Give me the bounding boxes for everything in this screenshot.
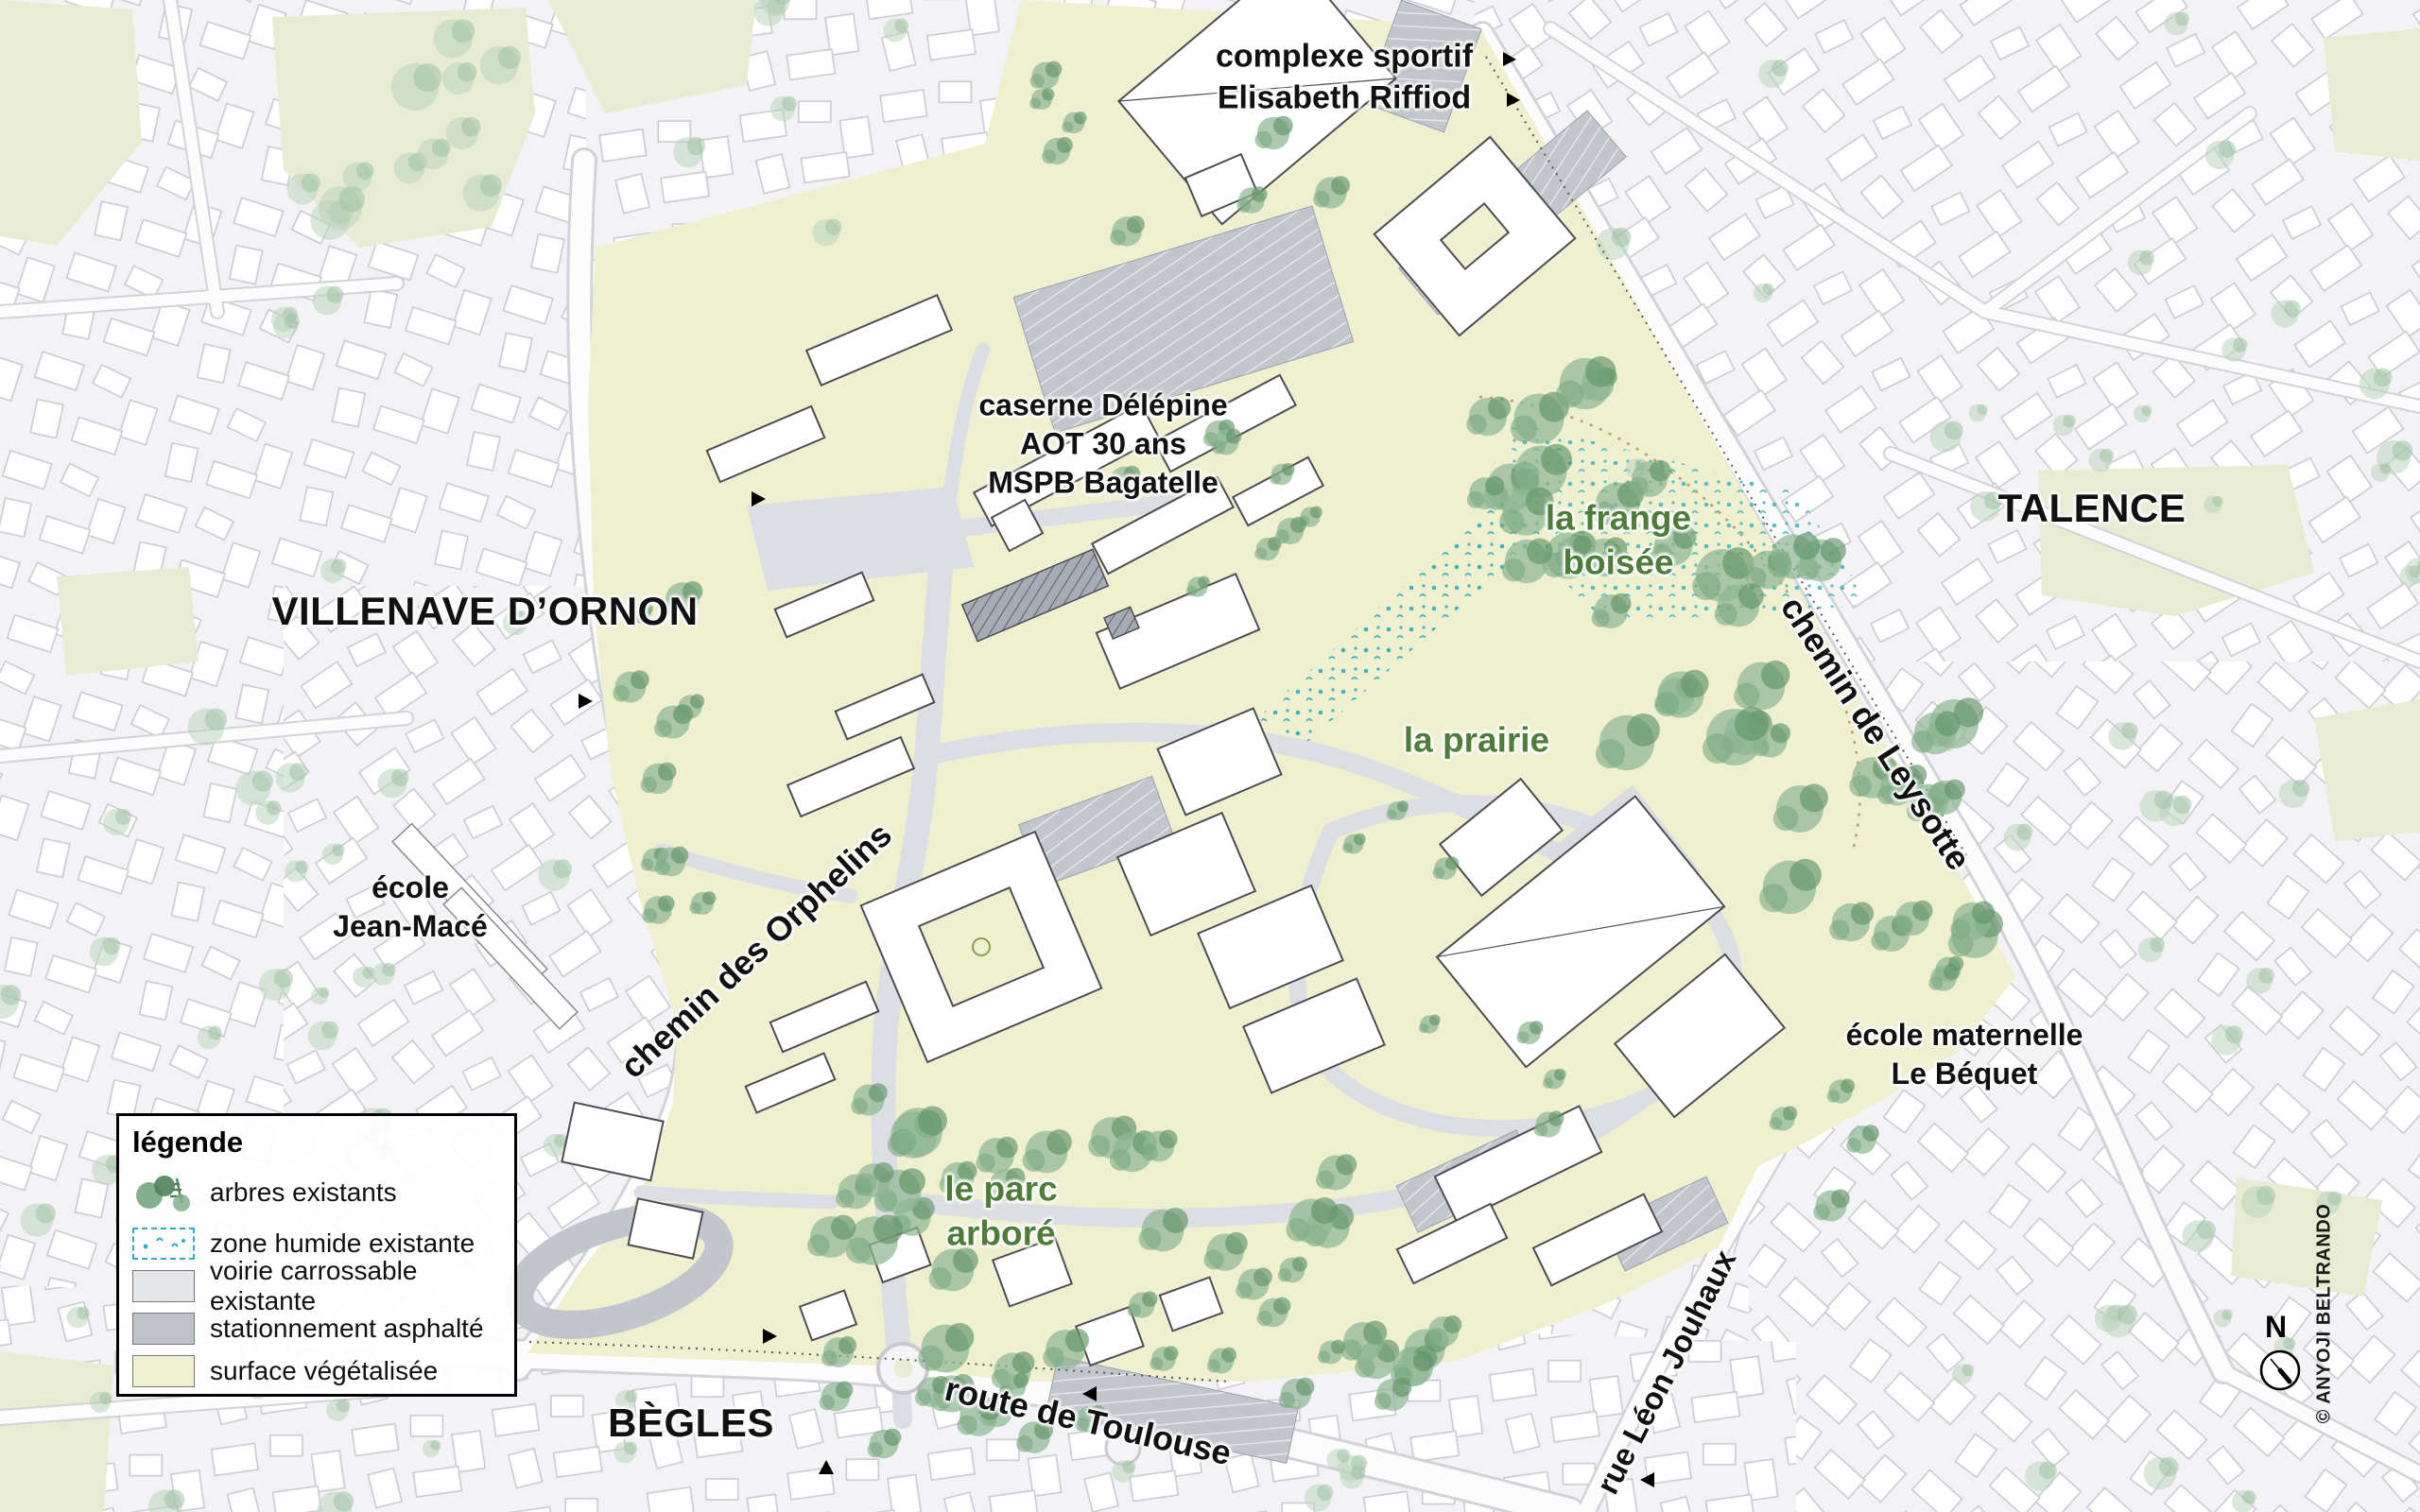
place-label-ecole-jean-mace: école Jean-Macé	[333, 868, 488, 946]
legend-item-label: stationnement asphalté	[210, 1314, 484, 1344]
legend: légende arbres existants zone humide exi…	[116, 1113, 517, 1397]
legend-item-parking: stationnement asphalté	[132, 1307, 501, 1349]
trees-swatch-icon	[132, 1165, 195, 1220]
legend-item-trees: arbres existants	[132, 1163, 501, 1222]
place-label-ecole-maternelle: école maternelle Le Béquet	[1846, 1016, 2083, 1093]
legend-item-vegetated: surface végétalisée	[132, 1349, 501, 1392]
legend-title: légende	[132, 1125, 501, 1160]
city-label-talence: TALENCE	[1998, 483, 2187, 534]
legend-item-label: arbres existants	[210, 1177, 397, 1208]
site-plan-screenshot: complexe sportif Elisabeth Riffiod caser…	[0, 0, 2420, 1512]
area-label-parc-arbore: le parc arboré	[944, 1167, 1057, 1257]
north-label: N	[2265, 1310, 2287, 1345]
legend-item-label: surface végétalisée	[210, 1356, 438, 1386]
place-label-caserne-delepine: caserne Délépine AOT 30 ans MSPB Bagatel…	[978, 387, 1227, 503]
legend-item-label: voirie carrossable existante	[210, 1256, 501, 1316]
area-label-frange-boisee: la frange boisée	[1546, 496, 1691, 586]
area-label-prairie: la prairie	[1404, 717, 1549, 762]
legend-item-label: zone humide existante	[210, 1228, 475, 1259]
legend-item-road: voirie carrossable existante	[132, 1264, 501, 1307]
vegetated-swatch	[132, 1355, 195, 1387]
city-label-villenave: VILLENAVE D’ORNON	[271, 586, 698, 637]
north-compass: N	[2254, 1314, 2320, 1399]
place-label-complexe-sportif: complexe sportif Elisabeth Riffiod	[1216, 36, 1473, 118]
city-label-begles: BÈGLES	[608, 1398, 774, 1449]
wetland-swatch-icon	[132, 1228, 195, 1260]
road-swatch	[132, 1270, 195, 1302]
parking-swatch	[132, 1313, 195, 1345]
